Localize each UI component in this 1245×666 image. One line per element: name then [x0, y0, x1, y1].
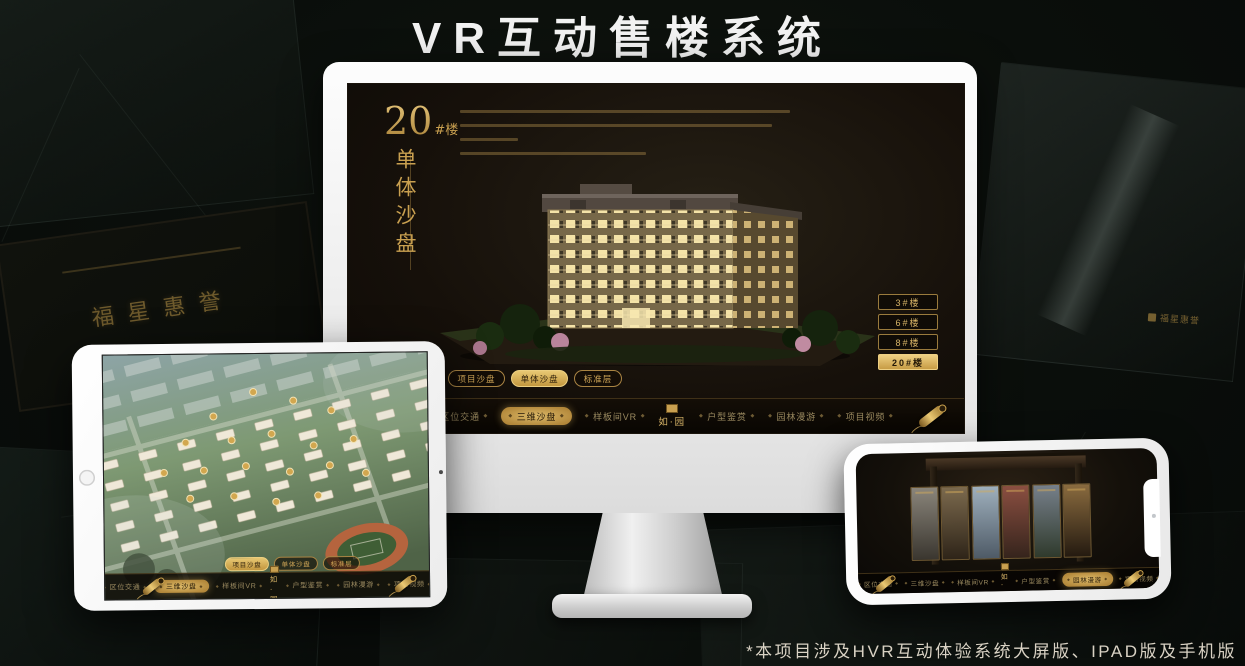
- phone-nav-item-unit-appreciation[interactable]: 户型鉴赏: [1015, 575, 1056, 586]
- courtyard-gate-beam: [926, 455, 1086, 470]
- tablet-camera-icon: [439, 470, 443, 474]
- monitor-nav-item-garden-tour[interactable]: 园林漫游: [768, 410, 824, 423]
- heading-divider-line: [410, 150, 411, 270]
- brand-logo-text: 如·园: [1001, 571, 1010, 595]
- gallery-panel-6[interactable]: [1062, 483, 1092, 558]
- brand-seal-icon: [666, 404, 678, 413]
- gallery-panel-4[interactable]: [1001, 485, 1031, 560]
- tablet-nav-item-model-room-vr[interactable]: 样板间VR: [216, 580, 263, 590]
- background-photo-tile: [970, 62, 1245, 382]
- plaque-small-text-line: [62, 247, 241, 274]
- brand-logo-text: 如·园: [658, 414, 686, 428]
- tablet-view-tabs: 项目沙盘 单体沙盘 标准层: [225, 556, 360, 572]
- monitor-stand-base: [552, 594, 752, 618]
- monitor-nav-item-unit-appreciation[interactable]: 户型鉴赏: [699, 410, 755, 423]
- floor-button-6[interactable]: 6#楼: [878, 314, 938, 330]
- monitor-stand-neck: [583, 513, 723, 599]
- developer-logo-icon: [1148, 313, 1157, 322]
- tab-standard-floor[interactable]: 标准层: [574, 370, 622, 387]
- monitor-view-tabs: 项目沙盘 单体沙盘 标准层: [448, 370, 622, 387]
- tablet-screen: 项目沙盘 单体沙盘 标准层 区位交通 三维沙盘 样板间VR 如·园 户型鉴赏 园…: [102, 351, 431, 600]
- building-number: 20: [384, 99, 432, 143]
- phone-nav-item-3d-sandtable[interactable]: 三维沙盘: [905, 577, 946, 588]
- tablet-brand-logo: 如·园: [270, 566, 279, 601]
- background-river-shape: [1037, 104, 1180, 336]
- tablet-nav-item-unit-appreciation[interactable]: 户型鉴赏: [286, 580, 330, 590]
- scroll-handle-icon[interactable]: [917, 404, 945, 429]
- floor-button-8[interactable]: 8#楼: [878, 334, 938, 350]
- floor-button-20[interactable]: 20#楼: [878, 354, 938, 370]
- building-subtitle-vertical: 单体沙盘: [390, 148, 420, 260]
- tablet-tab-single-building-sandtable[interactable]: 单体沙盘: [274, 556, 318, 571]
- page: 福星惠誉 福星惠誉 VR互动售楼系统 20#楼 单体沙盘: [0, 0, 1245, 666]
- tablet-nav-item-location-traffic[interactable]: 区位交通: [103, 582, 147, 592]
- gallery-panel-1[interactable]: [910, 486, 940, 561]
- building-model-render[interactable]: [420, 158, 890, 370]
- phone-brand-logo: 如·园: [1001, 563, 1010, 594]
- tablet-device: 项目沙盘 单体沙盘 标准层 区位交通 三维沙盘 样板间VR 如·园 户型鉴赏 园…: [72, 341, 448, 611]
- monitor-brand-logo: 如·园: [658, 404, 686, 428]
- brand-logo-text: 如·园: [270, 574, 279, 601]
- phone-bottom-nav: 区位交通 三维沙盘 样板间VR 如·园 户型鉴赏 园林漫游 项目视频: [858, 567, 1159, 594]
- brand-seal-icon: [1001, 563, 1010, 569]
- phone-notch: [1143, 479, 1161, 557]
- developer-logo-text: 福星惠誉: [1160, 311, 1201, 327]
- footnote-text: *本项目涉及HVR互动体验系统大屏版、IPAD版及手机版: [746, 637, 1237, 662]
- gallery-panel-5[interactable]: [1032, 484, 1062, 559]
- phone-nav-item-garden-tour[interactable]: 园林漫游: [1062, 572, 1113, 586]
- gallery-panel-2[interactable]: [940, 486, 970, 561]
- floor-button-group: 3#楼 6#楼 8#楼 20#楼: [878, 294, 938, 370]
- phone-nav-item-model-room-vr[interactable]: 样板间VR: [951, 576, 995, 587]
- tablet-bottom-nav: 区位交通 三维沙盘 样板间VR 如·园 户型鉴赏 园林漫游 项目视频: [105, 570, 429, 599]
- tab-project-sandtable[interactable]: 项目沙盘: [448, 370, 505, 387]
- tablet-tab-project-sandtable[interactable]: 项目沙盘: [225, 557, 269, 572]
- brand-seal-icon: [270, 566, 279, 573]
- monitor-nav-item-model-room-vr[interactable]: 样板间VR: [585, 410, 646, 423]
- page-title: VR互动售楼系统: [0, 2, 1245, 66]
- phone-screen: 区位交通 三维沙盘 样板间VR 如·园 户型鉴赏 园林漫游 项目视频: [856, 448, 1160, 594]
- tab-single-building-sandtable[interactable]: 单体沙盘: [511, 370, 568, 387]
- tablet-home-button[interactable]: [79, 470, 95, 486]
- building-number-suffix: #楼: [434, 123, 458, 138]
- tablet-nav-item-garden-tour[interactable]: 园林漫游: [337, 579, 381, 589]
- gallery-panel-3[interactable]: [971, 485, 1001, 560]
- monitor-nav-item-project-video[interactable]: 项目视频: [837, 410, 893, 423]
- phone-device: 区位交通 三维沙盘 样板间VR 如·园 户型鉴赏 园林漫游 项目视频: [843, 438, 1171, 606]
- tablet-tab-standard-floor[interactable]: 标准层: [323, 556, 360, 571]
- monitor-nav-item-3d-sandtable[interactable]: 三维沙盘: [501, 407, 572, 425]
- floor-button-3[interactable]: 3#楼: [878, 294, 938, 310]
- plaque-title: 福星惠誉: [89, 281, 236, 333]
